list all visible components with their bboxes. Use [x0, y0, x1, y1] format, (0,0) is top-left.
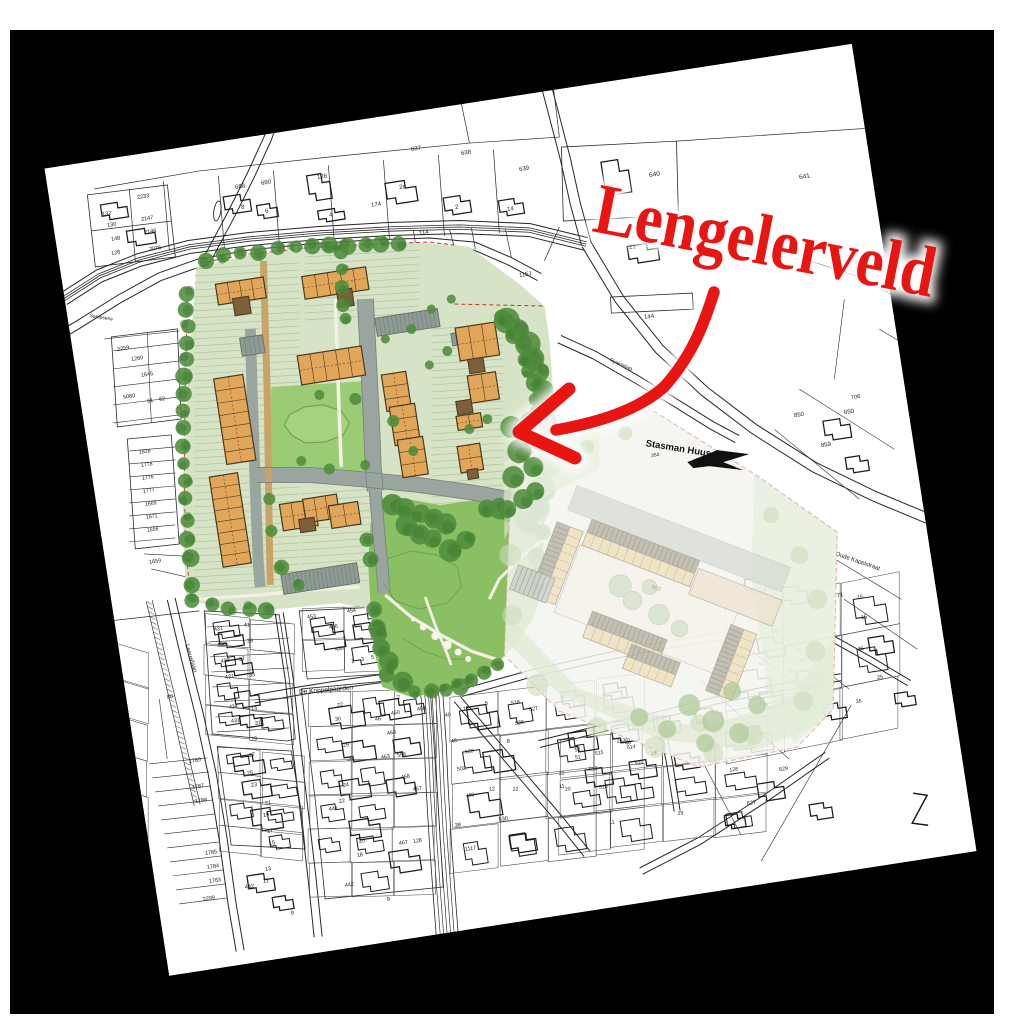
- svg-text:13: 13: [251, 706, 258, 713]
- svg-text:29: 29: [343, 742, 350, 749]
- svg-text:22: 22: [337, 702, 344, 709]
- svg-text:15: 15: [463, 706, 470, 713]
- svg-text:11: 11: [263, 878, 270, 885]
- svg-text:35: 35: [857, 646, 864, 653]
- svg-text:354: 354: [651, 452, 660, 459]
- svg-text:22: 22: [512, 786, 519, 793]
- svg-text:37: 37: [239, 656, 246, 663]
- svg-text:11: 11: [559, 783, 565, 790]
- svg-text:46: 46: [625, 740, 632, 747]
- svg-text:23: 23: [251, 782, 258, 789]
- svg-text:11: 11: [609, 819, 615, 826]
- svg-text:15: 15: [857, 594, 864, 601]
- svg-text:62: 62: [159, 396, 166, 403]
- svg-text:80: 80: [167, 694, 174, 701]
- svg-text:13: 13: [265, 866, 272, 873]
- svg-text:18: 18: [357, 852, 364, 859]
- svg-text:22: 22: [339, 798, 346, 805]
- svg-text:35: 35: [249, 672, 256, 679]
- svg-text:31: 31: [255, 720, 262, 727]
- svg-text:40: 40: [445, 712, 452, 719]
- svg-text:24: 24: [343, 782, 350, 789]
- svg-text:20: 20: [565, 786, 572, 793]
- svg-text:29: 29: [677, 810, 684, 817]
- svg-text:27: 27: [249, 752, 256, 759]
- svg-text:35: 35: [856, 698, 863, 705]
- svg-text:53: 53: [574, 747, 581, 754]
- svg-text:61: 61: [147, 398, 154, 405]
- svg-text:20: 20: [359, 838, 366, 845]
- svg-text:30: 30: [335, 716, 342, 723]
- svg-text:29: 29: [251, 736, 258, 743]
- svg-text:25: 25: [247, 770, 254, 777]
- svg-text:12: 12: [489, 786, 496, 793]
